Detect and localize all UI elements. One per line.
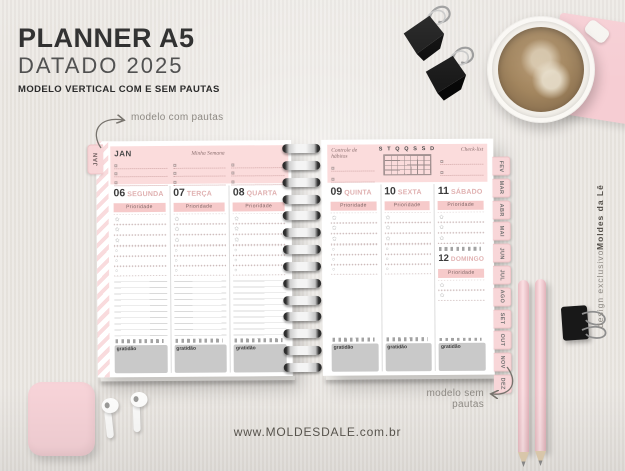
day-column-thursday: 09QUINTA Prioridade gratidão: [327, 184, 381, 371]
binding-stripe: [96, 141, 110, 377]
checkbox-row: [440, 337, 482, 341]
pencil-tip: [518, 452, 529, 467]
pink-pencil: [518, 280, 529, 452]
priority-bar: Prioridade: [384, 201, 430, 210]
priority-bar: Prioridade: [331, 201, 377, 210]
checkbox-row: [116, 339, 164, 343]
checklist-script: Check-list: [441, 147, 484, 153]
habit-grid: [383, 154, 431, 175]
pink-pencil: [535, 279, 546, 451]
month-tab-ago: AGO: [493, 287, 511, 306]
month-tab-fev: FEV: [492, 157, 510, 176]
checkbox-row: [235, 338, 283, 342]
product-subtitle: DATADO 2025: [18, 55, 220, 77]
star-bullets: [173, 214, 226, 246]
pencil-tip: [535, 451, 546, 466]
earbuds-case: [28, 382, 95, 456]
header-checklist-grid: [114, 159, 284, 186]
month-tab-jul: JUL: [493, 266, 511, 285]
priority-bar: Prioridade: [173, 203, 225, 212]
checkbox-row: [386, 337, 428, 341]
gratitude-box: gratidão: [115, 344, 168, 372]
coffee-cup: [487, 16, 595, 123]
product-mockup: PLANNER A5 DATADO 2025 MODELO VERTICAL C…: [0, 0, 625, 471]
month-tab-mar: MAR: [492, 178, 510, 197]
ruled-lines: [233, 275, 286, 335]
left-day-columns: 06SEGUNDA Prioridade gratidão 07TERÇA Pr…: [110, 185, 289, 373]
week-letters: S T Q Q S S D: [379, 146, 436, 153]
day-column-saturday-sunday: 11SÁBADO Prioridade 12DOMINGO Prioridade…: [434, 184, 489, 371]
month-tab-nov: NOV: [494, 353, 512, 372]
priority-bar: Prioridade: [438, 201, 484, 210]
month-tab-dez: DEZ: [494, 374, 512, 393]
month-tab-set: SET: [493, 309, 511, 328]
left-header-band: JAN Minha Semana: [110, 145, 288, 184]
star-bullets: [438, 279, 485, 300]
blank-area: [382, 274, 435, 334]
ruled-lines: [114, 276, 167, 336]
ruled-lines: [174, 276, 227, 336]
product-tagline: MODELO VERTICAL COM E SEM PAUTAS: [18, 84, 220, 95]
circle-bullets: [385, 244, 432, 274]
earbud-icon: [130, 392, 148, 433]
month-tab-mai: MAI: [493, 222, 511, 241]
circle-bullets: [174, 246, 227, 276]
brand-name: Moldes da Lê: [595, 184, 605, 250]
month-tab-out: OUT: [494, 331, 512, 350]
mini-week-calendar: S T Q Q S S D: [379, 146, 436, 182]
month-tabs: FEV MAR ABR MAI JUN JUL AGO SET OUT NOV …: [492, 157, 512, 394]
checkbox-row: [439, 247, 481, 251]
right-day-columns: 09QUINTA Prioridade gratidão 10SEXTA Pri…: [327, 184, 488, 372]
month-tab-jan: JAN: [87, 144, 103, 174]
circle-bullets: [233, 245, 286, 275]
website-url: www.MOLDESDALE.com.br: [225, 425, 410, 439]
day-column-tuesday: 07TERÇA Prioridade gratidão: [169, 185, 230, 372]
checkbox-row: [333, 337, 375, 341]
header-script: Minha Semana: [132, 150, 285, 157]
circle-bullets: [331, 244, 378, 274]
day-column-wednesday: 08QUARTA Prioridade gratidão: [229, 185, 290, 372]
header-month: JAN: [114, 149, 132, 158]
planner-spread: JAN JAN Minha Semana 06SEGUNDA Prioridad…: [87, 135, 513, 386]
star-bullets: [233, 213, 286, 245]
gratitude-box: gratidão: [385, 343, 432, 371]
priority-bar: Prioridade: [233, 202, 285, 211]
month-tab-jun: JUN: [493, 244, 511, 263]
star-bullets: [384, 212, 431, 244]
spiral-binding: [282, 142, 322, 374]
right-header-band: Controle de hábitos S T Q Q S S D Check-…: [327, 144, 487, 183]
checkbox-row: [175, 339, 223, 343]
priority-bar: Prioridade: [438, 268, 484, 277]
day-column-friday: 10SEXTA Prioridade gratidão: [380, 184, 435, 371]
star-bullets: [114, 214, 167, 246]
priority-bar: Prioridade: [114, 203, 166, 212]
circle-bullets: [114, 246, 167, 276]
binder-clip-icon: [418, 44, 484, 104]
day-column-monday: 06SEGUNDA Prioridade gratidão: [110, 186, 170, 373]
month-tab-abr: ABR: [493, 200, 511, 219]
gratitude-box: gratidão: [174, 344, 227, 372]
gratitude-box: gratidão: [332, 343, 379, 371]
designer-credit: design exclusivo Moldes da Lê: [595, 138, 605, 328]
planner-right-page: Controle de hábitos S T Q Q S S D Check-…: [321, 139, 495, 376]
product-title: PLANNER A5: [18, 25, 220, 52]
gratitude-box: gratidão: [234, 344, 287, 372]
habit-script: Controle de hábitos: [331, 147, 374, 159]
blank-area: [436, 300, 489, 334]
earbud-icon: [101, 397, 122, 439]
headline: PLANNER A5 DATADO 2025 MODELO VERTICAL C…: [18, 25, 220, 95]
star-bullets: [438, 212, 485, 244]
blank-area: [328, 274, 381, 334]
coffee-surface: [498, 27, 584, 112]
planner-left-page: JAN Minha Semana 06SEGUNDA Prioridade: [96, 140, 293, 377]
label-without-lines: modelo sem pautas: [396, 388, 484, 410]
gratitude-box: gratidão: [439, 343, 486, 371]
label-with-lines: modelo com pautas: [131, 112, 223, 123]
star-bullets: [331, 212, 378, 244]
